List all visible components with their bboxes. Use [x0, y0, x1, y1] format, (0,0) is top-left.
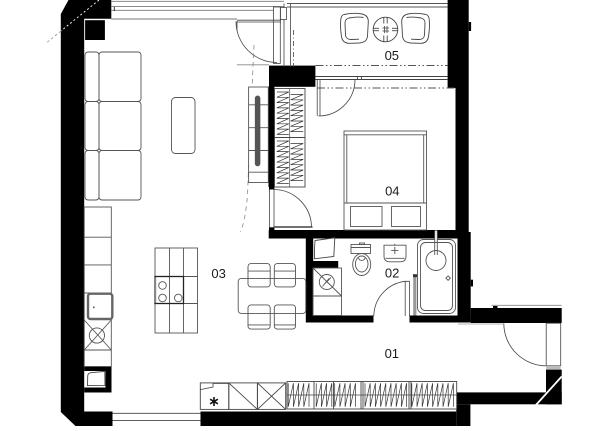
svg-text:04: 04	[385, 184, 399, 199]
svg-text:02: 02	[385, 266, 399, 281]
svg-text:03: 03	[211, 266, 225, 281]
svg-text:05: 05	[385, 48, 399, 63]
svg-text:01: 01	[385, 346, 399, 361]
